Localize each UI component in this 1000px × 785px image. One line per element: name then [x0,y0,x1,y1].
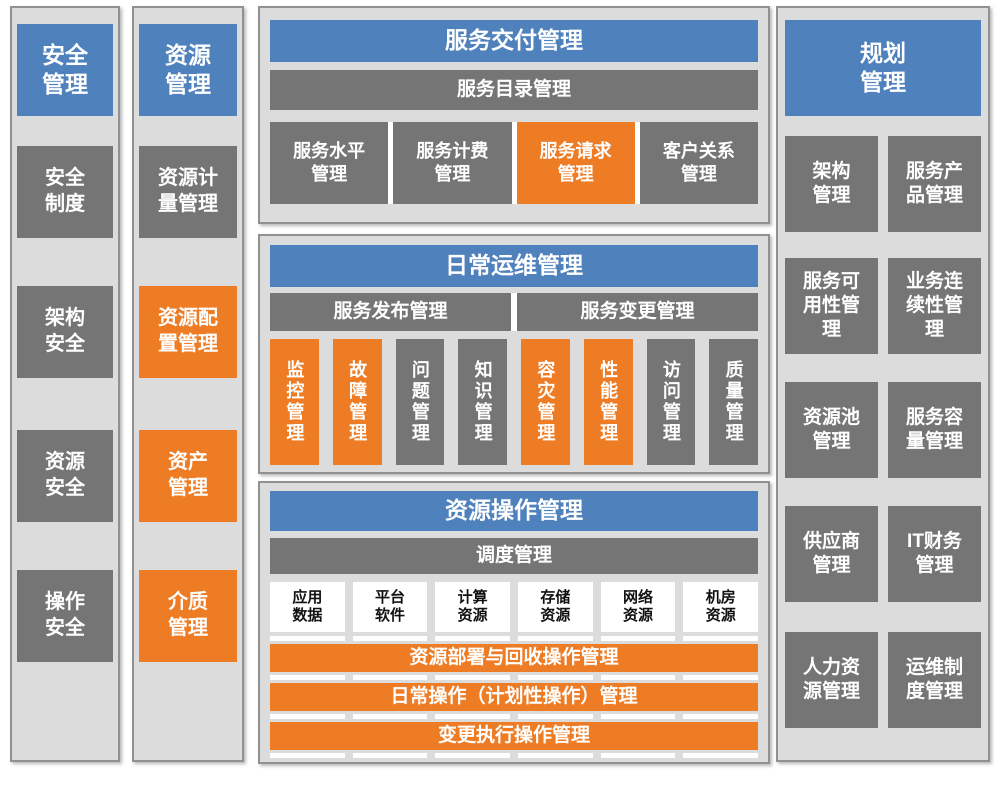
service-delivery-panel: 服务交付管理 服务目录管理 服务水平 管理 服务计费 管理 服务请求 管理 客户… [258,6,770,224]
box-service-request: 服务请求 管理 [517,122,635,204]
security-management-panel: 安全 管理 安全 制度 架构 安全 资源 安全 操作 安全 [10,6,120,762]
planning-row: 资源池 管理 服务容 量管理 [785,382,981,478]
service-change-bar: 服务变更管理 [517,293,758,331]
box-room-resource: 机房 资源 [683,582,758,632]
grid-strip [270,675,758,680]
box-security-policy: 安全 制度 [17,146,113,238]
box-asset-management: 资产 管理 [139,430,237,522]
change-execution-ops-bar: 变更执行操作管理 [270,722,758,750]
grid-strip [270,714,758,719]
box-platform-software: 平台 软件 [353,582,428,632]
box-hr-management: 人力资 源管理 [785,632,878,728]
planning-management-panel: 规划 管理 架构 管理 服务产 品管理 服务可 用性管 理 业务连 续性管 理 … [776,6,990,762]
box-service-capacity-management: 服务容 量管理 [888,382,981,478]
box-operation-security: 操作 安全 [17,570,113,662]
box-service-level: 服务水平 管理 [270,122,388,204]
scheduling-bar: 调度管理 [270,538,758,574]
box-application-data: 应用 数据 [270,582,345,632]
planning-row: 供应商 管理 IT财务 管理 [785,506,981,602]
box-service-product-management: 服务产 品管理 [888,136,981,232]
box-resource-pool-management: 资源池 管理 [785,382,878,478]
security-management-header: 安全 管理 [17,24,113,116]
box-disaster-recovery: 容灾管理 [521,339,570,465]
box-business-continuity-management: 业务连 续性管 理 [888,258,981,354]
resource-ops-panel: 资源操作管理 调度管理 应用 数据 平台 软件 计算 资源 存储 资源 网络 资… [258,481,770,764]
planning-row: 服务可 用性管 理 业务连 续性管 理 [785,258,981,354]
daily-ops-columns: 监控管理 故障管理 问题管理 知识管理 容灾管理 性能管理 访问管理 质量管理 [270,339,758,465]
planning-management-header: 规划 管理 [785,20,981,116]
box-knowledge-management: 知识管理 [458,339,507,465]
planning-row: 人力资 源管理 运维制 度管理 [785,632,981,728]
service-delivery-row: 服务水平 管理 服务计费 管理 服务请求 管理 客户关系 管理 [270,122,758,204]
box-incident-management: 故障管理 [333,339,382,465]
box-service-billing: 服务计费 管理 [393,122,511,204]
box-ops-policy-management: 运维制 度管理 [888,632,981,728]
service-release-bar: 服务发布管理 [270,293,511,331]
box-access-management: 访问管理 [647,339,696,465]
resource-type-row: 应用 数据 平台 软件 计算 资源 存储 资源 网络 资源 机房 资源 [270,582,758,632]
grid-strip [270,753,758,758]
box-monitoring-management: 监控管理 [270,339,319,465]
box-it-finance-management: IT财务 管理 [888,506,981,602]
box-supplier-management: 供应商 管理 [785,506,878,602]
grid-strip [270,636,758,641]
box-architecture-security: 架构 安全 [17,286,113,378]
box-customer-relationship: 客户关系 管理 [640,122,758,204]
box-resource-metering: 资源计 量管理 [139,146,237,238]
daily-ops-header: 日常运维管理 [270,245,758,287]
routine-planned-ops-bar: 日常操作（计划性操作）管理 [270,683,758,711]
box-problem-management: 问题管理 [396,339,445,465]
planning-row: 架构 管理 服务产 品管理 [785,136,981,232]
resource-management-panel: 资源 管理 资源计 量管理 资源配 置管理 资产 管理 介质 管理 [132,6,244,762]
daily-ops-bars: 服务发布管理 服务变更管理 [270,293,758,331]
resource-management-header: 资源 管理 [139,24,237,116]
box-architecture-management: 架构 管理 [785,136,878,232]
box-storage-resource: 存储 资源 [518,582,593,632]
box-compute-resource: 计算 资源 [435,582,510,632]
service-catalog-bar: 服务目录管理 [270,70,758,110]
service-delivery-header: 服务交付管理 [270,20,758,62]
daily-ops-panel: 日常运维管理 服务发布管理 服务变更管理 监控管理 故障管理 问题管理 知识管理… [258,234,770,474]
box-service-availability-management: 服务可 用性管 理 [785,258,878,354]
box-resource-configuration: 资源配 置管理 [139,286,237,378]
resource-ops-header: 资源操作管理 [270,491,758,531]
box-resource-security: 资源 安全 [17,430,113,522]
box-media-management: 介质 管理 [139,570,237,662]
box-performance-management: 性能管理 [584,339,633,465]
deploy-reclaim-ops-bar: 资源部署与回收操作管理 [270,644,758,672]
box-quality-management: 质量管理 [709,339,758,465]
box-network-resource: 网络 资源 [601,582,676,632]
